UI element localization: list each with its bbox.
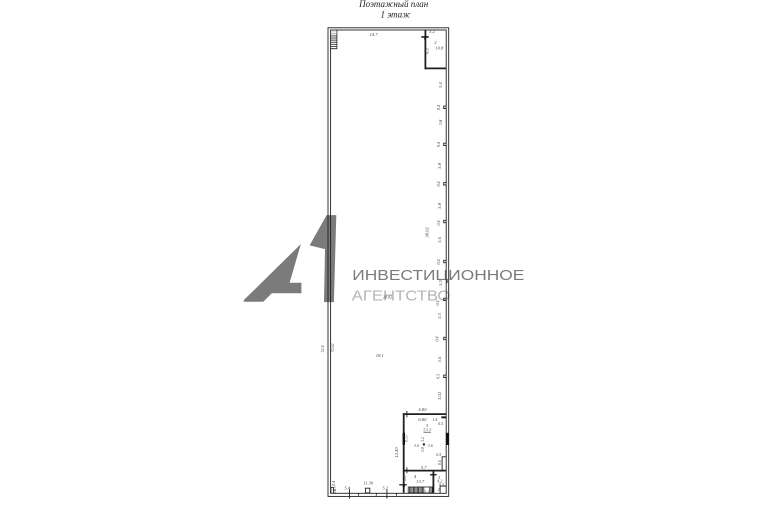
- svg-text:3.8: 3.8: [438, 119, 443, 125]
- svg-text:0.4: 0.4: [436, 182, 441, 187]
- svg-text:3.6: 3.6: [437, 236, 442, 242]
- svg-text:6.80: 6.80: [418, 407, 427, 412]
- svg-text:0.4: 0.4: [331, 481, 336, 486]
- svg-text:0.4: 0.4: [435, 337, 440, 342]
- svg-text:3.8: 3.8: [437, 162, 442, 168]
- svg-text:3.8: 3.8: [437, 202, 442, 208]
- svg-text:0.3: 0.3: [436, 374, 441, 379]
- svg-text:3.1: 3.1: [424, 489, 429, 494]
- svg-text:14.7: 14.7: [370, 32, 379, 37]
- svg-text:72.62: 72.62: [330, 344, 335, 353]
- svg-text:8.55: 8.55: [403, 435, 408, 442]
- svg-text:5.7: 5.7: [421, 465, 427, 470]
- svg-text:13.7: 13.7: [416, 479, 425, 484]
- svg-text:6.2: 6.2: [425, 47, 430, 53]
- svg-text:3.2: 3.2: [420, 437, 425, 442]
- svg-text:5.4: 5.4: [438, 81, 443, 87]
- svg-text:5.1: 5.1: [382, 486, 388, 491]
- svg-text:0.6: 0.6: [437, 460, 442, 465]
- svg-text:6.80: 6.80: [418, 417, 427, 422]
- svg-text:0.5: 0.5: [438, 421, 443, 426]
- svg-text:5.4: 5.4: [344, 486, 350, 491]
- svg-text:4: 4: [414, 474, 417, 479]
- svg-text:0.4: 0.4: [435, 301, 440, 306]
- svg-text:0.4: 0.4: [436, 260, 441, 265]
- svg-text:53.3: 53.3: [423, 428, 432, 433]
- svg-text:2.0: 2.0: [402, 476, 407, 481]
- svg-text:0.5: 0.5: [436, 452, 441, 457]
- svg-text:12.40: 12.40: [394, 447, 399, 458]
- svg-text:1.4: 1.4: [432, 417, 437, 422]
- svg-text:3.2: 3.2: [429, 29, 435, 34]
- svg-text:3.02: 3.02: [437, 391, 442, 400]
- svg-text:3.0: 3.0: [420, 447, 425, 452]
- svg-text:3.0: 3.0: [414, 443, 419, 448]
- svg-text:3.6: 3.6: [437, 356, 442, 362]
- svg-text:0.4: 0.4: [436, 105, 441, 110]
- svg-text:0.4: 0.4: [436, 142, 441, 147]
- svg-text:32.4: 32.4: [320, 346, 325, 353]
- svg-text:0.4: 0.4: [436, 221, 441, 226]
- svg-text:28.02: 28.02: [383, 295, 392, 300]
- svg-text:10.8: 10.8: [435, 45, 444, 50]
- svg-text:3.5: 3.5: [437, 312, 442, 318]
- svg-text:11.30: 11.30: [363, 481, 374, 486]
- svg-text:1 этаж: 1 этаж: [380, 9, 411, 19]
- svg-text:18.1: 18.1: [376, 353, 384, 358]
- svg-text:Поэтажный план: Поэтажный план: [358, 0, 429, 9]
- svg-text:0.6: 0.6: [333, 489, 337, 494]
- svg-text:3.6: 3.6: [428, 443, 433, 448]
- svg-text:2: 2: [438, 487, 440, 492]
- svg-text:38.02: 38.02: [425, 227, 430, 238]
- svg-text:3.5: 3.5: [438, 279, 443, 285]
